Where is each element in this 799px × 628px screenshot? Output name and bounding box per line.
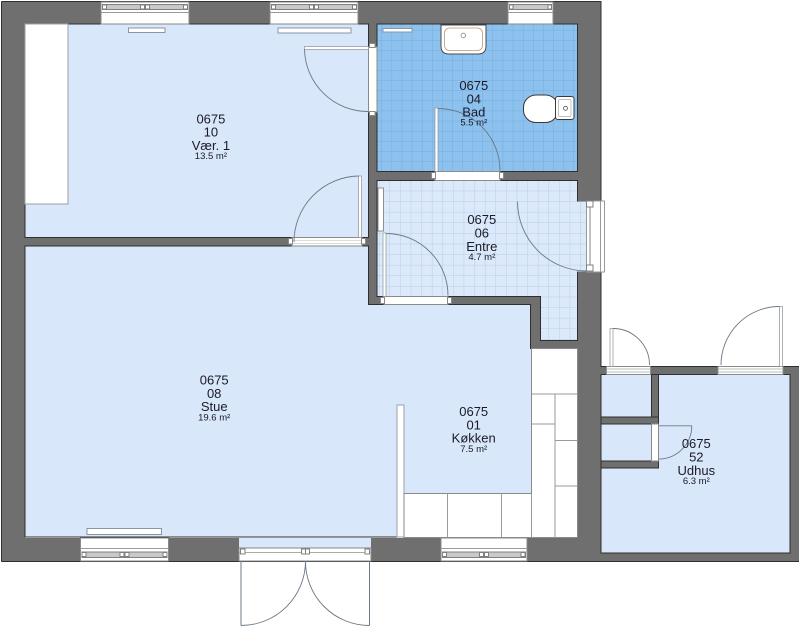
svg-text:19.6 m²: 19.6 m² bbox=[198, 412, 230, 423]
svg-text:7.5 m²: 7.5 m² bbox=[460, 444, 487, 455]
svg-text:4.7 m²: 4.7 m² bbox=[468, 252, 495, 263]
svg-text:13.5 m²: 13.5 m² bbox=[195, 151, 227, 162]
svg-text:5.5 m²: 5.5 m² bbox=[460, 118, 487, 129]
svg-text:6.3 m²: 6.3 m² bbox=[683, 476, 710, 487]
